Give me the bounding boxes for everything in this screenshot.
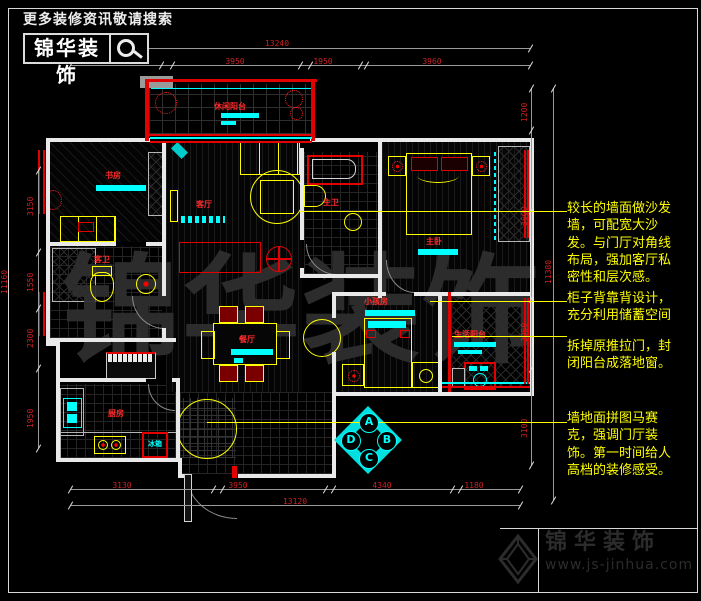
cad-dim-bar [418,249,458,255]
footer-logo-icon [498,534,538,584]
balcony-parapet-right [311,79,315,141]
bathtub-basin [312,159,356,179]
dim-tick [36,444,41,452]
dining-chair [245,306,264,323]
washer-panel [480,366,488,371]
toilet [90,272,114,302]
dim-line [553,88,554,500]
wall [414,292,534,296]
dim-left-seg: 2300 [27,318,35,358]
sheet-border-top [8,8,698,9]
room-label-living: 客厅 [196,201,212,209]
wall [378,292,386,296]
room-label-study: 书房 [105,172,121,180]
dim-bottom-seg: 1180 [454,482,494,490]
balcony-glazing-line [151,88,311,89]
wall [46,138,150,142]
lounge-chair-seat [260,180,294,214]
cad-dim-bar [454,342,496,347]
fridge: 冰箱 [142,432,168,458]
dim-bottom-seg: 3130 [102,482,142,490]
dining-side-unit [276,331,290,359]
compass-d: D [341,431,361,451]
wall [162,142,166,296]
wall [300,274,382,278]
leader-line [207,422,567,423]
bed-kids [364,318,412,388]
dining-chair [245,365,264,382]
wall [332,392,336,478]
pillow [441,157,468,171]
dining-chair [219,365,238,382]
stove-burner [98,440,108,450]
washbasin [136,274,156,294]
window-frame [43,292,45,336]
titleblock-divider-v [538,528,539,592]
balcony-sill-red [147,134,313,136]
search-button[interactable] [109,33,149,64]
dim-top-seg: 1950 [303,58,343,66]
dim-right-seg: 1200 [521,92,529,132]
cad-dim-bar [458,350,482,354]
compass-a: A [359,413,379,433]
cad-dim-bar [221,113,259,118]
room-label-guest-bath: 客卫 [94,256,110,264]
bed-master [406,153,472,235]
cabinet [452,368,465,387]
leader-line [300,211,567,212]
new-wall-red [448,292,451,392]
annotation-mosaic: 墙地面拼图马赛克，强调门厅装饰。第一时间给人高档的装修感受。 [567,410,679,479]
dining-chair [219,306,238,323]
plant-icon [155,92,177,114]
annotation-balcony-window: 拆掉原推拉门，封闭阳台成落地窗。 [567,338,679,373]
bathtub [307,155,363,185]
compass-c: C [359,449,379,469]
balcony-window-cyan [150,137,312,139]
wall [172,378,180,382]
search-icon-handle [133,50,143,59]
dim-right-seg: 2950 [521,312,529,352]
balcony-parapet-top [145,79,317,82]
wall [46,338,176,342]
cad-dim-bar [365,310,415,316]
piano [106,352,156,379]
dim-tick [528,44,533,52]
window-rail [494,150,496,240]
room-label-dining: 餐厅 [239,336,255,344]
sink-basin [67,414,77,423]
dining-side-unit [201,331,215,359]
dim-tick [518,485,523,493]
wall [176,378,180,462]
cad-dim-bar [221,121,236,125]
wall [438,292,442,392]
room-label-leisure-balcony: 休闲阳台 [214,103,246,111]
footer-brand: 锦华装饰 [545,531,661,553]
desk [412,362,440,388]
dim-top-total: 13240 [257,40,297,48]
flower-icon [348,370,360,382]
wall [300,148,304,240]
dim-right-seg: 3600 [521,196,529,236]
annotation-cabinets: 柜子背靠背设计，充分利用储蓄空间 [567,290,679,325]
piano-keys [107,354,153,362]
wall [310,138,534,142]
dim-bottom-seg: 3950 [218,482,258,490]
window-glazing [442,382,530,384]
entry-door-leaf [184,474,192,522]
sheet-border-bottom [8,592,698,593]
dining-table [213,323,277,365]
compass-b: B [377,431,397,451]
wall [56,378,146,382]
stove-burner [111,440,121,450]
dim-bottom-total: 13120 [273,498,317,506]
window-frame [442,386,530,388]
washbasin [344,213,362,231]
dim-left-seg: 1950 [27,398,35,438]
blanket-corner [400,330,410,338]
annotation-sofa-wall: 较长的墙面做沙发墙，可配宽大沙发。与门厅对角线布局，强加客厅私密性和层次感。 [567,200,679,286]
toilet-tank [92,266,112,276]
dim-tick [528,61,533,69]
search-icon [117,39,135,57]
wall [332,292,378,296]
dim-top-seg: 3960 [412,58,452,66]
wall [146,242,162,246]
cad-sheet: 更多装修资讯敬请搜索 锦华装饰 锦华装饰 [0,0,701,601]
cad-dim-bar [96,185,146,191]
dim-bottom-seg: 4340 [362,482,402,490]
blanket-corner [366,330,376,338]
washer-drum [473,373,487,387]
rug [179,242,261,273]
mosaic-circle [177,399,237,459]
room-label-service-balcony: 生活阳台 [454,331,486,339]
leader-line [452,336,567,337]
cad-dim-bar [234,358,243,363]
wall [56,458,182,462]
room-label-master-bedroom: 主卧 [426,238,442,246]
cad-dim-bar [231,349,273,355]
window-frame [43,150,45,214]
pillow [411,157,438,171]
flower-icon [476,161,487,172]
sheet-border-right [697,8,698,592]
flower-icon [392,161,403,172]
pillow-bar [368,321,406,328]
wall [46,242,116,246]
washer-panel [469,366,477,371]
wall [332,292,336,318]
gas-stove [94,436,126,454]
wall [332,352,336,392]
balcony-sill-red2 [150,141,312,143]
study-sofa-cushion [78,222,94,232]
tv-cabinet [181,216,225,223]
plant-icon [285,90,303,108]
dim-left-seg: 3150 [27,186,35,226]
room-label-master-bath: 主卫 [323,199,339,207]
wall [238,474,336,478]
nightstand [388,156,406,176]
footer-url: www.js-jinhua.com [545,558,693,572]
dim-right-seg: 3100 [521,408,529,448]
wall [378,138,382,298]
wall [332,392,534,396]
room-label-kitchen: 厨房 [108,410,124,418]
nightstand [342,364,364,386]
ceiling-lamp-symbol [266,246,292,272]
dim-tick [551,496,556,504]
plant-icon [290,107,303,120]
dim-top-seg: 3950 [215,58,255,66]
balcony-parapet-left [145,79,149,141]
brand-logo: 锦华装饰 [23,33,111,64]
wall [56,342,60,462]
kitchen-sink [63,398,82,428]
sink-basin [67,402,77,411]
sheet-border-left [8,8,9,592]
desk-chair [419,369,433,383]
dim-line [531,88,532,465]
tv-set [170,190,178,222]
header-tagline: 更多装修资讯敬请搜索 [23,13,173,27]
dim-left-seg: 1550 [27,262,35,302]
dim-tick [529,461,534,469]
leader-line [430,301,567,302]
entry-threshold [232,466,237,478]
room-label-kids: 小孩房 [364,298,388,306]
nightstand [472,156,490,176]
dim-tick [518,501,523,509]
dim-right-total: 11380 [545,248,553,296]
